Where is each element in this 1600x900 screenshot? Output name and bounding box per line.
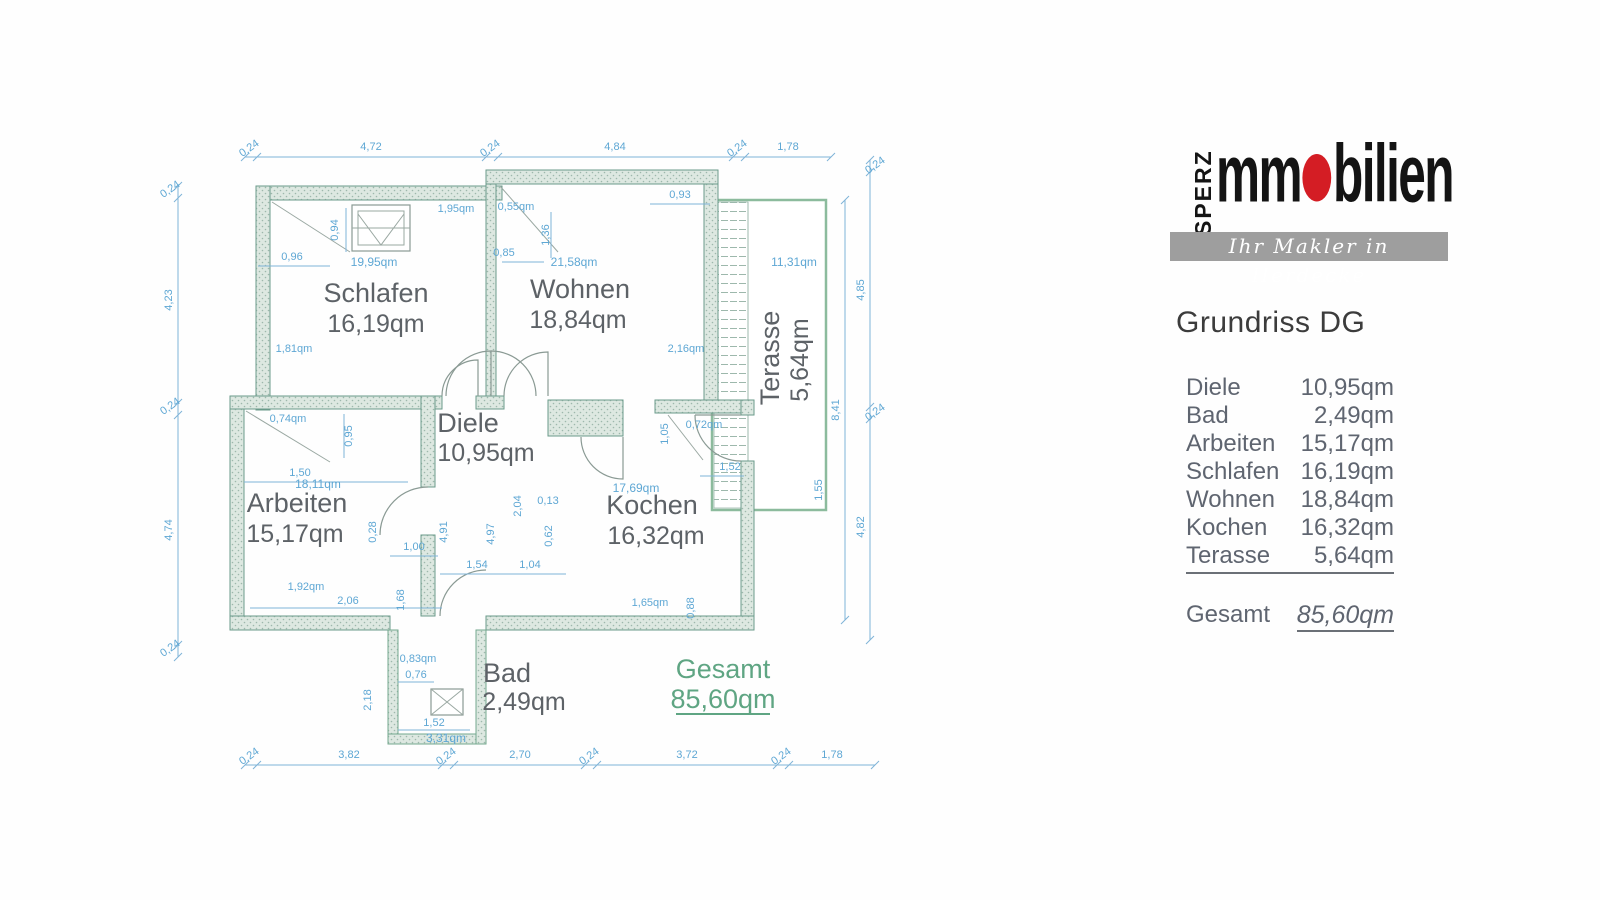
dim-label: 0,62 — [543, 525, 555, 546]
dim-label: 0,94 — [329, 219, 341, 240]
dim-label: 0,95 — [343, 425, 355, 446]
dim-label: 4,74 — [163, 519, 175, 540]
room-area-arbeiten: 15,17qm — [246, 520, 343, 548]
logo-tagline-bar: Ihr Makler in Herdecke — [1170, 232, 1448, 261]
dim-label: 1,52 — [423, 717, 444, 729]
dim-label: 0,74qm — [270, 413, 307, 425]
room-name: Arbeiten — [1186, 430, 1275, 458]
dim-label: 3,82 — [338, 749, 359, 761]
dim-label: 1,52 — [719, 461, 740, 473]
room-area: 15,17qm — [1301, 430, 1394, 458]
room-raw-area: 19,95qm — [351, 255, 398, 269]
dim-label: 1,00 — [403, 541, 424, 553]
dim-label: 0,13 — [537, 495, 558, 507]
room-area-terasse: 5,64qm — [786, 318, 814, 401]
dim-label: 0,55qm — [498, 201, 535, 213]
dim-label: 0,24 — [863, 154, 887, 176]
dim-label: 1,78 — [821, 749, 842, 761]
room-area: 5,64qm — [1314, 542, 1394, 572]
dim-label: 1,92qm — [288, 581, 325, 593]
room-area-diele: 10,95qm — [437, 439, 534, 467]
dim-label: 2,70 — [509, 749, 530, 761]
table-row: Terasse 5,64qm — [1186, 542, 1394, 574]
room-area: 10,95qm — [1301, 374, 1394, 402]
table-row: Kochen 16,32qm — [1186, 514, 1394, 542]
dim-label: 8,41 — [830, 399, 842, 420]
dim-label: 1,68 — [395, 589, 407, 610]
dim-label: 0,96 — [281, 251, 302, 263]
dim-label: 0,72qm — [686, 419, 723, 431]
total-value: 85,60qm — [1297, 600, 1394, 632]
room-name: Kochen — [1186, 514, 1267, 542]
table-total-row: Gesamt 85,60qm — [1186, 600, 1394, 632]
dim-label: 4,72 — [360, 141, 381, 153]
page-title: Grundriss DG — [1176, 306, 1365, 340]
room-label-kochen: Kochen — [606, 490, 698, 520]
dim-label: 1,81qm — [276, 343, 313, 355]
dim-label: 1,04 — [519, 559, 540, 571]
dim-label: 4,23 — [163, 289, 175, 310]
logo-word-start: mm — [1216, 129, 1301, 220]
room-area-kochen: 16,32qm — [607, 522, 704, 550]
logo-wordmark: mmbilien — [1216, 134, 1453, 216]
table-row: Arbeiten 15,17qm — [1186, 430, 1394, 458]
dim-label: 0,24 — [863, 401, 887, 423]
table-row: Schlafen 16,19qm — [1186, 458, 1394, 486]
dim-label: 4,85 — [855, 279, 867, 300]
dim-label: 0,85 — [493, 247, 514, 259]
dim-label: 4,82 — [855, 516, 867, 537]
dim-label: 3,72 — [676, 749, 697, 761]
dim-label: 1,54 — [466, 559, 487, 571]
dim-label: 2,04 — [512, 495, 524, 516]
floor-plan-drawing: 0,24 4,72 0,24 4,84 0,24 1,78 0,24 3,82 … — [140, 70, 920, 800]
room-label-diele: Diele — [437, 408, 499, 438]
room-summary-table: Diele 10,95qm Bad 2,49qm Arbeiten 15,17q… — [1186, 374, 1394, 632]
dim-label: 0,93 — [669, 189, 690, 201]
dim-label: 4,84 — [604, 141, 625, 153]
room-name: Terasse — [1186, 542, 1270, 572]
logo-tagline: Ihr Makler in Herdecke — [1229, 234, 1390, 287]
dim-label: 0,28 — [367, 521, 379, 542]
room-area: 18,84qm — [1301, 486, 1394, 514]
dim-label: 0,88 — [685, 597, 697, 618]
room-area: 16,32qm — [1301, 514, 1394, 542]
room-name: Diele — [1186, 374, 1241, 402]
table-row: Wohnen 18,84qm — [1186, 486, 1394, 514]
plan-total-value: 85,60qm — [670, 684, 775, 714]
dim-label: 4,97 — [485, 523, 497, 544]
dim-label: 2,18 — [362, 689, 374, 710]
table-row: Bad 2,49qm — [1186, 402, 1394, 430]
room-name: Wohnen — [1186, 486, 1275, 514]
table-row: Diele 10,95qm — [1186, 374, 1394, 402]
logo-red-dot-icon — [1303, 154, 1332, 202]
room-label-arbeiten: Arbeiten — [247, 488, 348, 518]
dim-label: 1,65qm — [632, 597, 669, 609]
dim-label: 1,55 — [813, 479, 825, 500]
logo-sperz-vertical: SPERZ — [1190, 149, 1217, 236]
scanned-floorplan-page: 0,24 4,72 0,24 4,84 0,24 1,78 0,24 3,82 … — [0, 0, 1600, 900]
dim-label: 0,83qm — [400, 653, 437, 665]
dim-label: 1,36 — [540, 224, 552, 245]
room-raw-area: 3,31qm — [426, 731, 466, 745]
room-area: 16,19qm — [1301, 458, 1394, 486]
room-label-terasse: Terasse — [755, 311, 785, 406]
logo-word-end: bilien — [1333, 129, 1453, 220]
dim-label: 2,16qm — [668, 343, 705, 355]
company-logo: SPERZ mmbilien Ihr Makler in Herdecke — [1160, 140, 1460, 265]
room-label-schlafen: Schlafen — [323, 278, 428, 308]
dim-label: 1,95qm — [438, 203, 475, 215]
total-label: Gesamt — [1186, 600, 1270, 632]
room-area: 2,49qm — [1314, 402, 1394, 430]
room-area-schlafen: 16,19qm — [327, 310, 424, 338]
room-label-wohnen: Wohnen — [530, 274, 630, 304]
room-name: Bad — [1186, 402, 1229, 430]
room-name: Schlafen — [1186, 458, 1279, 486]
room-area-bad: 2,49qm — [482, 688, 565, 716]
dim-label: 0,76 — [405, 669, 426, 681]
room-label-bad: Bad — [483, 658, 531, 688]
dim-label: 2,06 — [337, 595, 358, 607]
dim-label: 4,91 — [438, 521, 450, 542]
dim-label: 1,78 — [777, 141, 798, 153]
room-area-wohnen: 18,84qm — [529, 306, 626, 334]
room-raw-area: 11,31qm — [771, 255, 817, 269]
dim-label: 1,05 — [659, 423, 671, 444]
plan-total-label: Gesamt — [676, 654, 771, 684]
room-raw-area: 21,58qm — [551, 255, 598, 269]
